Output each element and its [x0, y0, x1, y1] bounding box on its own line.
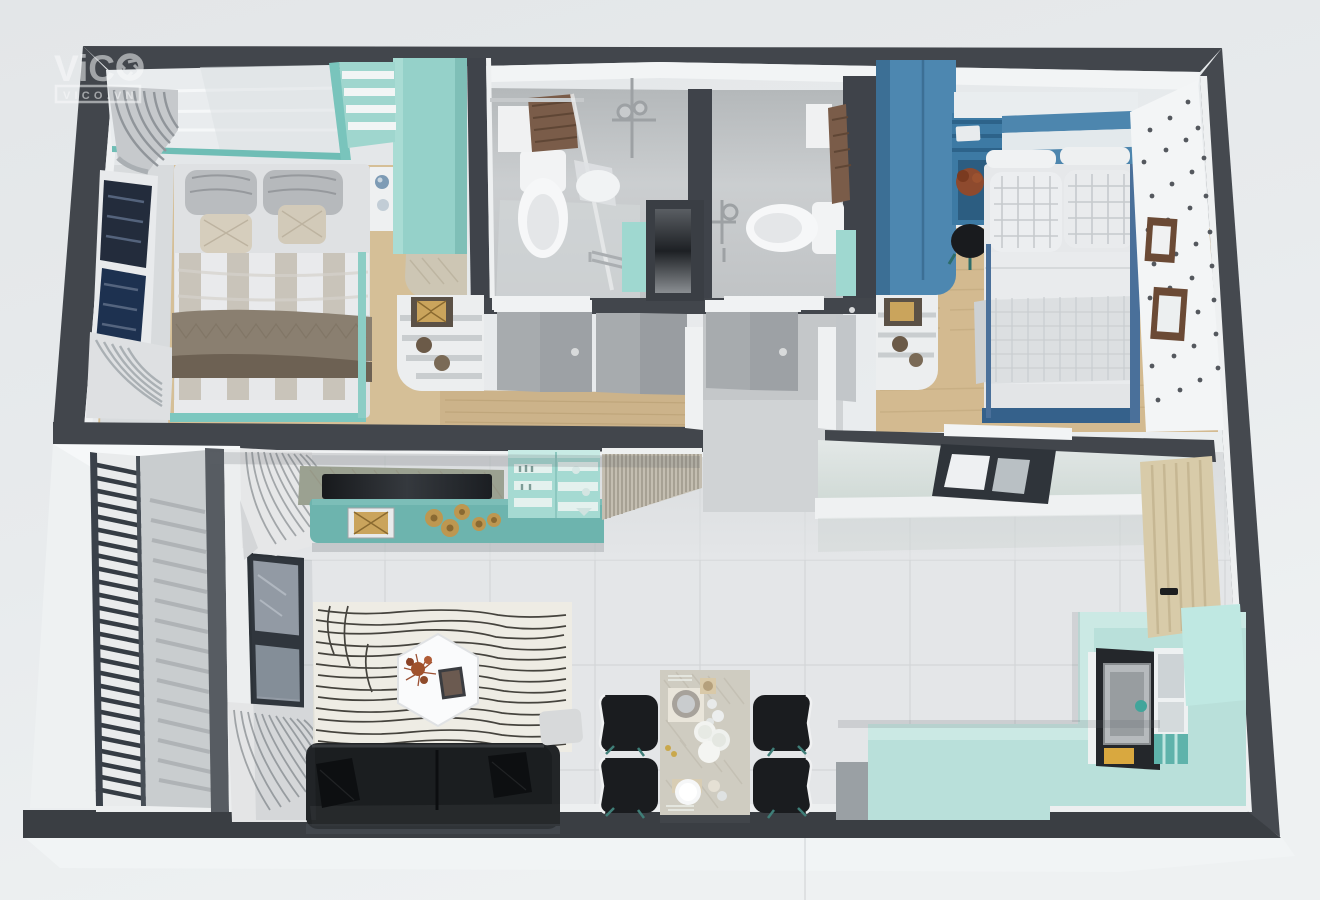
- svg-text:VICO.VN: VICO.VN: [63, 90, 138, 102]
- svg-text:ViC: ViC: [54, 48, 115, 89]
